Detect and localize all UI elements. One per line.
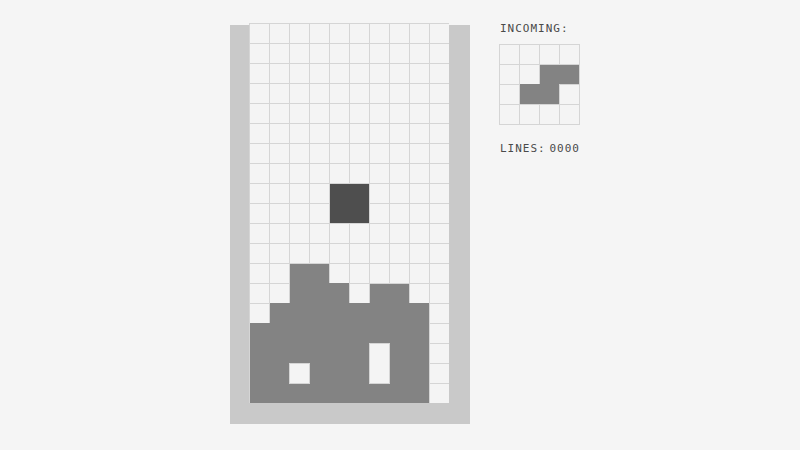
board-wall-right <box>449 25 470 424</box>
incoming-piece <box>520 84 559 104</box>
game-screen: INCOMING: LINES: 0000 <box>0 0 800 450</box>
incoming-preview-grid <box>499 44 580 125</box>
incoming-label: INCOMING: <box>500 22 569 35</box>
stack-block <box>250 323 429 403</box>
playfield-grid <box>249 23 449 403</box>
stack-hole <box>289 363 310 384</box>
stack-block <box>370 284 409 303</box>
stack-block <box>270 303 429 323</box>
incoming-piece <box>540 65 579 84</box>
stack-block <box>290 264 329 283</box>
stack-block <box>290 283 349 303</box>
board-wall-left <box>230 25 249 424</box>
lines-counter: 0000 <box>550 142 581 155</box>
lines-row: LINES: 0000 <box>500 142 580 155</box>
stack-hole <box>369 343 390 384</box>
board-wall-bottom <box>230 403 470 424</box>
lines-label: LINES: <box>500 142 546 155</box>
active-piece <box>330 184 369 223</box>
